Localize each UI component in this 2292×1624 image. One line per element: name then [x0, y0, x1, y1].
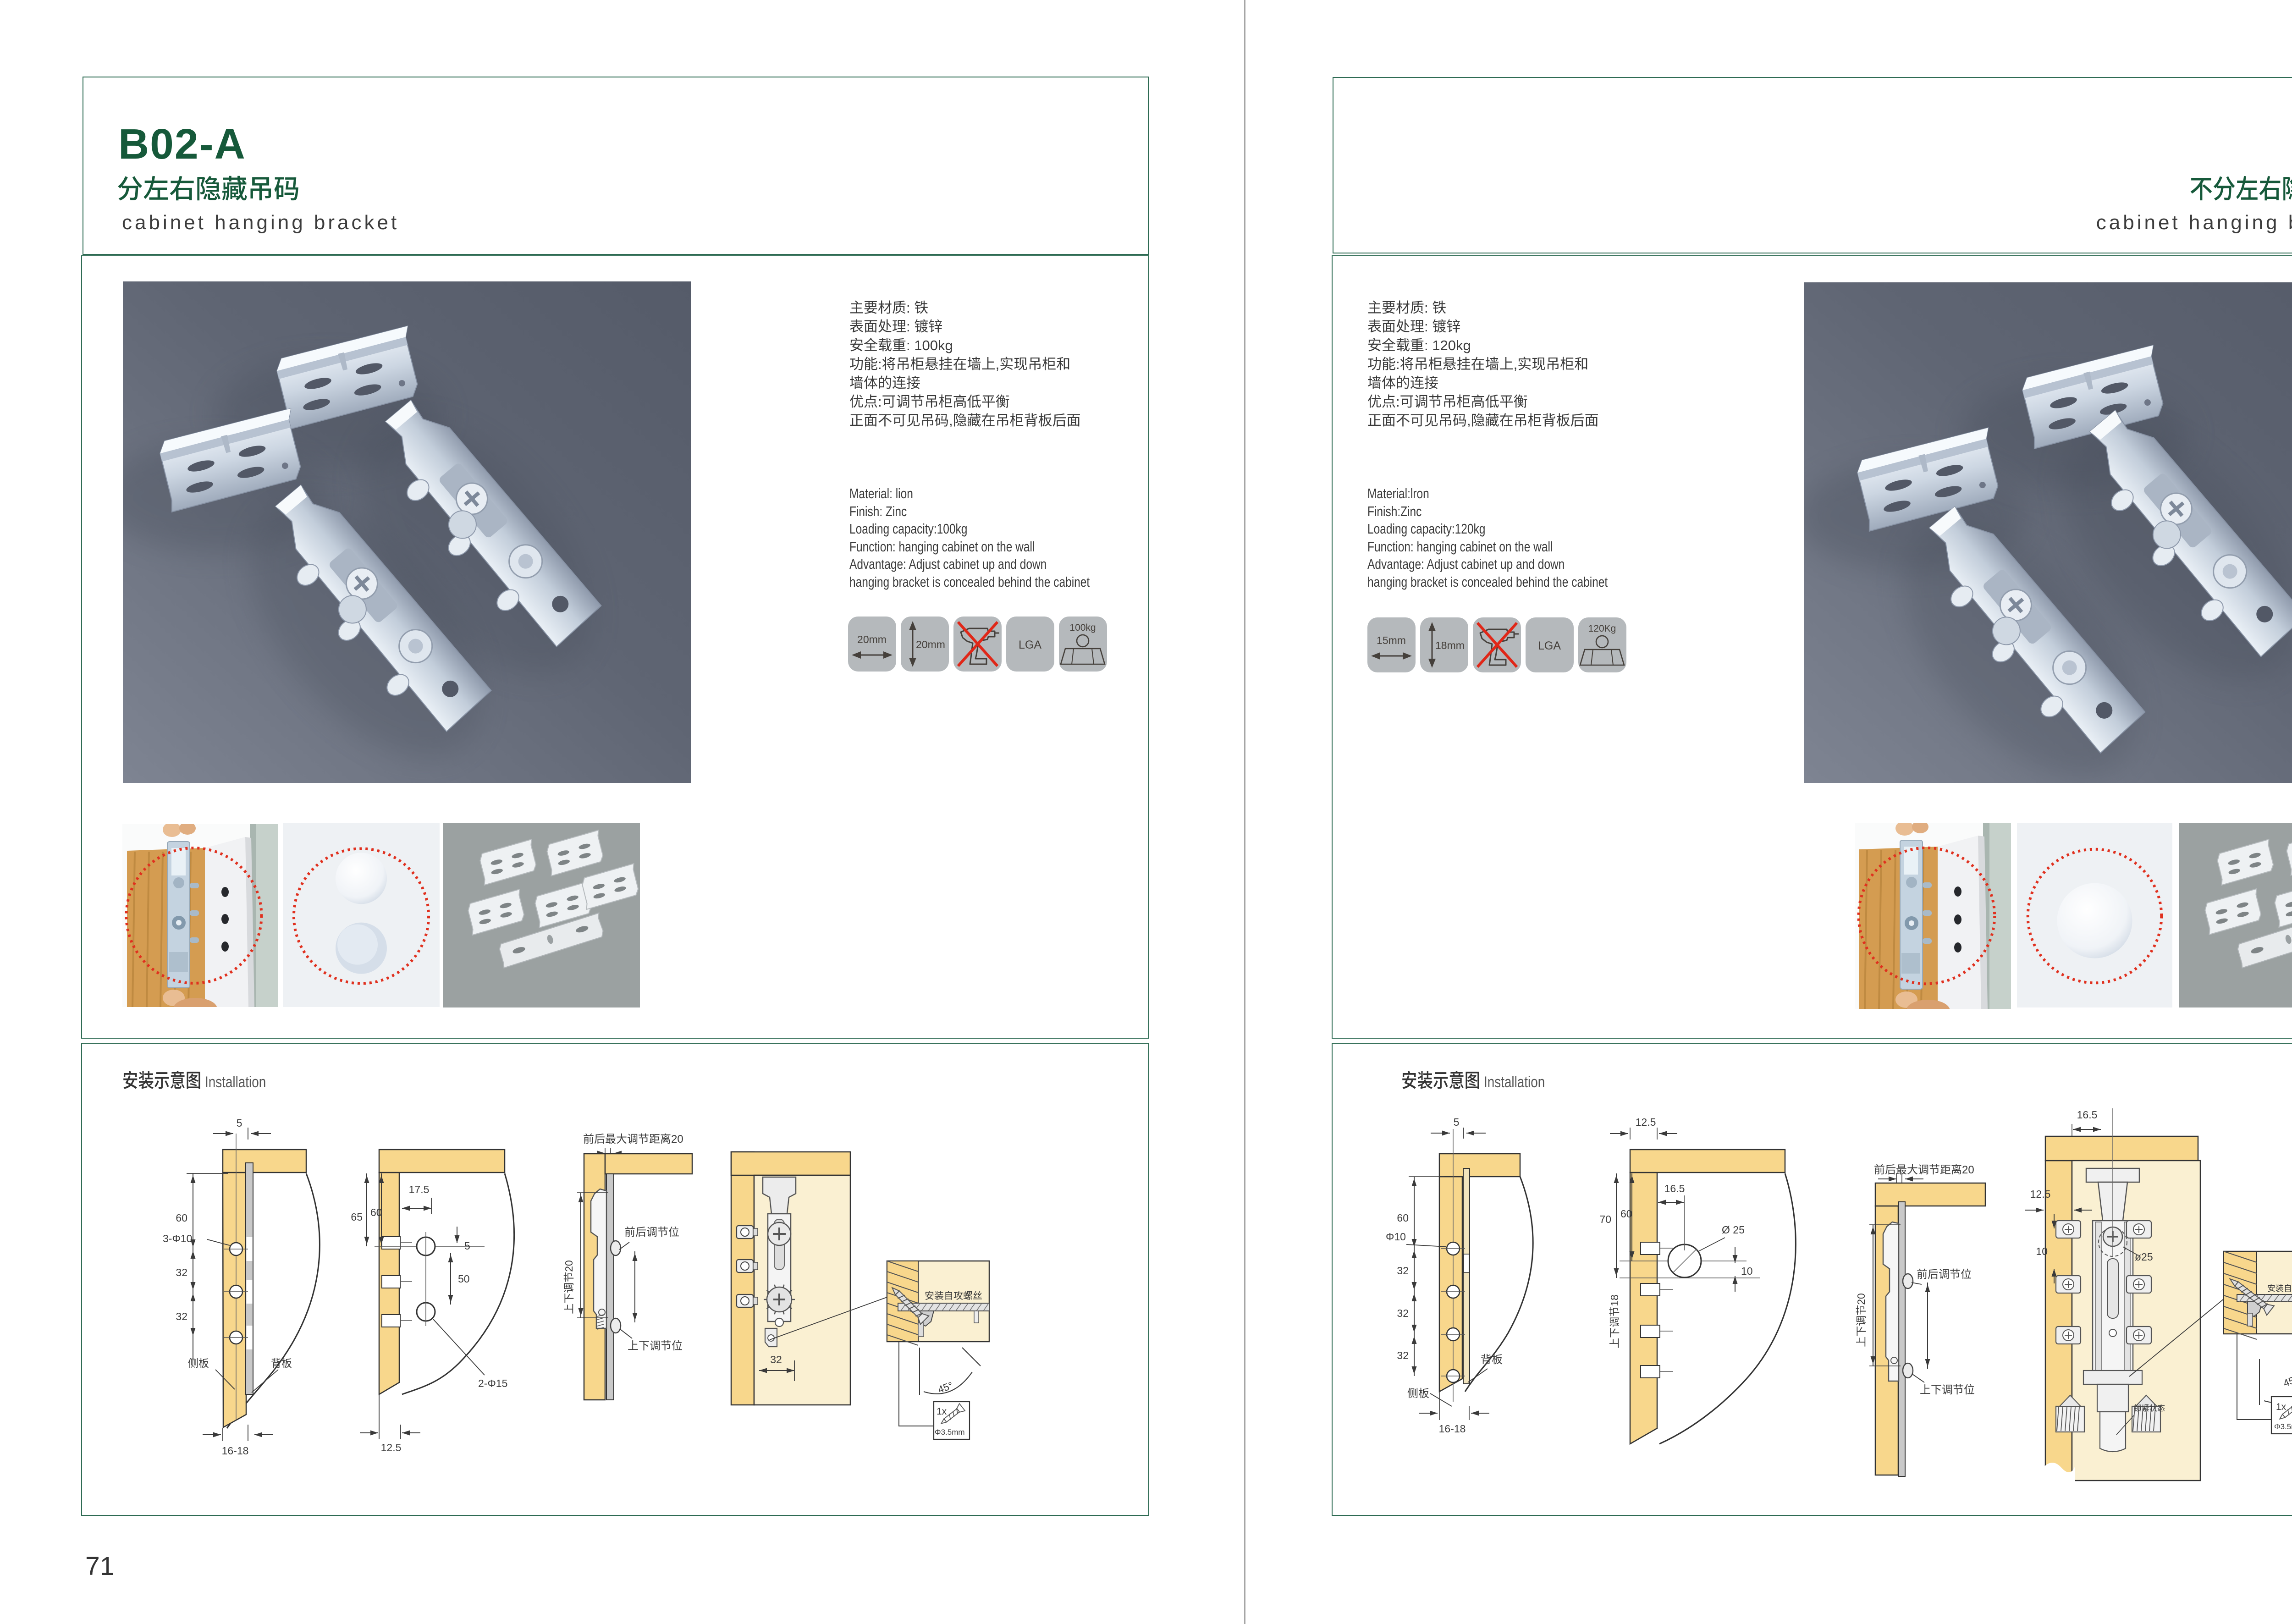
svg-text:5: 5: [237, 1117, 242, 1129]
svg-text:锁紧状态: 锁紧状态: [2134, 1404, 2165, 1413]
svg-text:1x: 1x: [937, 1406, 947, 1417]
svg-text:前后调节位: 前后调节位: [624, 1226, 679, 1239]
svg-text:120Kg: 120Kg: [1588, 623, 1616, 634]
svg-text:背板: 背板: [1481, 1354, 1503, 1366]
svg-text:17.5: 17.5: [409, 1184, 430, 1195]
svg-text:1x: 1x: [2276, 1402, 2286, 1412]
svg-text:16.5: 16.5: [1664, 1183, 1685, 1195]
svg-text:上下调节20: 上下调节20: [563, 1260, 575, 1314]
svg-text:70: 70: [1599, 1213, 1611, 1225]
svg-text:32: 32: [1397, 1349, 1409, 1361]
svg-text:10: 10: [2036, 1245, 2048, 1257]
svg-text:侧板: 侧板: [1407, 1387, 1429, 1400]
svg-text:100kg: 100kg: [1069, 622, 1096, 633]
svg-text:32: 32: [176, 1266, 187, 1278]
svg-text:12.5: 12.5: [381, 1442, 402, 1453]
svg-text:前后最大调节距离20: 前后最大调节距离20: [583, 1133, 683, 1145]
svg-text:18mm: 18mm: [1435, 639, 1465, 651]
svg-text:前后调节位: 前后调节位: [1917, 1268, 1972, 1281]
svg-text:Ø 25: Ø 25: [1722, 1224, 1745, 1236]
svg-text:12.5: 12.5: [2030, 1188, 2051, 1200]
svg-text:45°: 45°: [937, 1380, 955, 1396]
svg-text:16-18: 16-18: [222, 1445, 249, 1457]
svg-text:上下调节位: 上下调节位: [628, 1340, 683, 1352]
svg-text:12.5: 12.5: [1636, 1116, 1656, 1128]
svg-text:安装自攻螺丝: 安装自攻螺丝: [925, 1291, 982, 1301]
svg-text:上下调节18: 上下调节18: [1609, 1294, 1620, 1349]
svg-text:5: 5: [1454, 1116, 1460, 1128]
svg-text:上下调节位: 上下调节位: [1920, 1384, 1975, 1396]
svg-text:LGA: LGA: [1538, 639, 1561, 652]
svg-text:Φ10: Φ10: [1386, 1231, 1406, 1243]
svg-text:LGA: LGA: [1019, 639, 1041, 651]
svg-text:32: 32: [770, 1354, 782, 1365]
svg-text:20mm: 20mm: [916, 639, 945, 650]
svg-text:60: 60: [176, 1212, 187, 1224]
svg-text:50: 50: [458, 1273, 470, 1285]
svg-text:10: 10: [1741, 1265, 1753, 1277]
svg-text:16.5: 16.5: [2077, 1109, 2098, 1121]
svg-text:3-Φ10: 3-Φ10: [163, 1233, 192, 1244]
svg-text:Φ3.5mm: Φ3.5mm: [935, 1428, 965, 1437]
svg-text:60: 60: [1620, 1208, 1632, 1220]
svg-text:ø25: ø25: [2135, 1251, 2153, 1263]
svg-text:侧板: 侧板: [188, 1357, 209, 1369]
svg-text:32: 32: [1397, 1265, 1409, 1277]
svg-text:60: 60: [370, 1206, 382, 1218]
svg-text:前后最大调节距离20: 前后最大调节距离20: [1874, 1164, 1974, 1176]
svg-text:上下调节20: 上下调节20: [1855, 1293, 1867, 1347]
svg-text:5: 5: [464, 1240, 470, 1252]
svg-text:15mm: 15mm: [1377, 634, 1406, 646]
svg-text:32: 32: [1397, 1307, 1409, 1319]
svg-text:60: 60: [1397, 1212, 1409, 1224]
svg-text:20mm: 20mm: [857, 633, 887, 645]
svg-text:安装自攻螺丝: 安装自攻螺丝: [2267, 1284, 2292, 1293]
svg-text:32: 32: [176, 1310, 187, 1322]
svg-text:16-18: 16-18: [1439, 1423, 1466, 1435]
svg-text:2-Φ15: 2-Φ15: [478, 1377, 507, 1389]
svg-text:65: 65: [351, 1211, 363, 1223]
svg-text:45°: 45°: [2282, 1373, 2292, 1389]
svg-text:背板: 背板: [271, 1357, 292, 1369]
svg-text:Φ3.5mm: Φ3.5mm: [2274, 1422, 2292, 1431]
